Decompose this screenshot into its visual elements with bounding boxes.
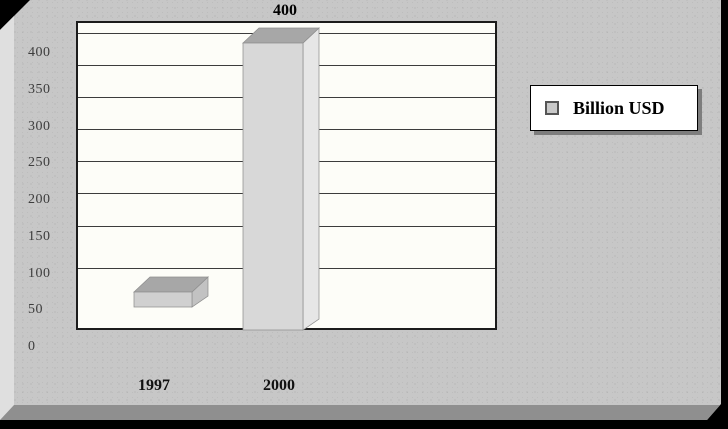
y-tick-label: 400	[28, 46, 51, 60]
legend-marker-icon	[545, 101, 559, 115]
y-tick-label: 250	[28, 156, 51, 170]
legend-label: Billion USD	[573, 98, 665, 119]
x-category-label: 1997	[138, 377, 170, 395]
x-category-label: 2000	[263, 377, 295, 395]
y-tick-label: 350	[28, 83, 51, 97]
data-label-2000: 400	[273, 2, 297, 20]
chart-image: 400350300250200150100500 19972000 400 Bi…	[0, 0, 728, 429]
y-tick-label: 200	[28, 193, 51, 207]
y-tick-label: 150	[28, 230, 51, 244]
bar-front-face	[243, 43, 303, 330]
y-tick-label: 0	[28, 340, 36, 354]
chart-panel: 400350300250200150100500 19972000 400 Bi…	[0, 0, 721, 420]
bar-1997	[134, 277, 208, 307]
y-tick-label: 100	[28, 267, 51, 281]
legend-box: Billion USD	[530, 85, 698, 131]
bar-side-face	[303, 28, 319, 330]
bar-front-face	[134, 292, 192, 307]
bars-layer	[0, 0, 721, 420]
y-tick-label: 300	[28, 120, 51, 134]
y-tick-label: 50	[28, 303, 43, 317]
bar-2000	[243, 28, 319, 330]
